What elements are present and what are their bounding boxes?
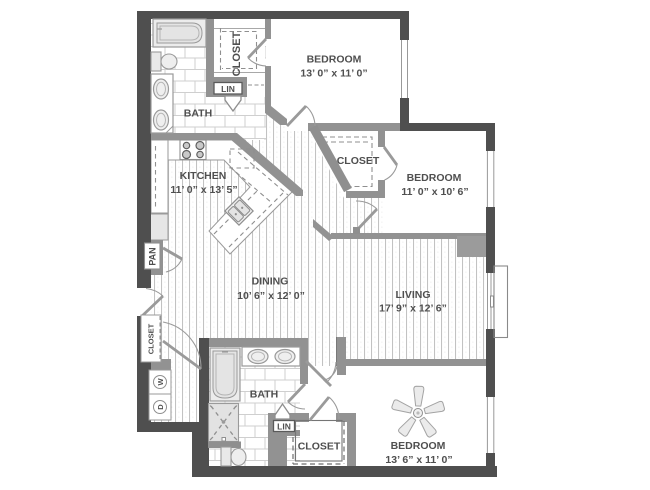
svg-text:LIN: LIN	[221, 84, 235, 94]
svg-text:LIVING: LIVING	[395, 289, 430, 301]
svg-text:LIN: LIN	[277, 422, 291, 432]
svg-text:11’ 0” x 13’ 5”: 11’ 0” x 13’ 5”	[170, 184, 237, 196]
svg-text:CLOSET: CLOSET	[298, 441, 341, 453]
svg-text:BEDROOM: BEDROOM	[391, 440, 446, 452]
svg-text:BATH: BATH	[184, 108, 212, 120]
svg-text:BATH: BATH	[250, 389, 278, 401]
svg-text:13’ 0” x 11’ 0”: 13’ 0” x 11’ 0”	[300, 68, 367, 80]
svg-text:CLOSET: CLOSET	[337, 155, 380, 167]
svg-text:11’ 0” x 10’ 6”: 11’ 0” x 10’ 6”	[401, 186, 468, 198]
svg-text:KITCHEN: KITCHEN	[180, 170, 227, 182]
svg-text:13’ 6” x 11’ 0”: 13’ 6” x 11’ 0”	[385, 454, 452, 466]
svg-text:10’ 6” x 12’ 0”: 10’ 6” x 12’ 0”	[237, 290, 305, 302]
svg-text:17’ 9” x 12’ 6”: 17’ 9” x 12’ 6”	[379, 303, 447, 315]
svg-text:CLOSET: CLOSET	[147, 323, 156, 354]
svg-text:PAN: PAN	[148, 247, 158, 265]
svg-text:BEDROOM: BEDROOM	[407, 172, 462, 184]
svg-text:CLOSET: CLOSET	[231, 31, 243, 76]
svg-text:DINING: DINING	[252, 276, 289, 288]
svg-text:D: D	[156, 404, 165, 410]
svg-text:W: W	[156, 378, 165, 386]
svg-text:BEDROOM: BEDROOM	[307, 54, 362, 66]
